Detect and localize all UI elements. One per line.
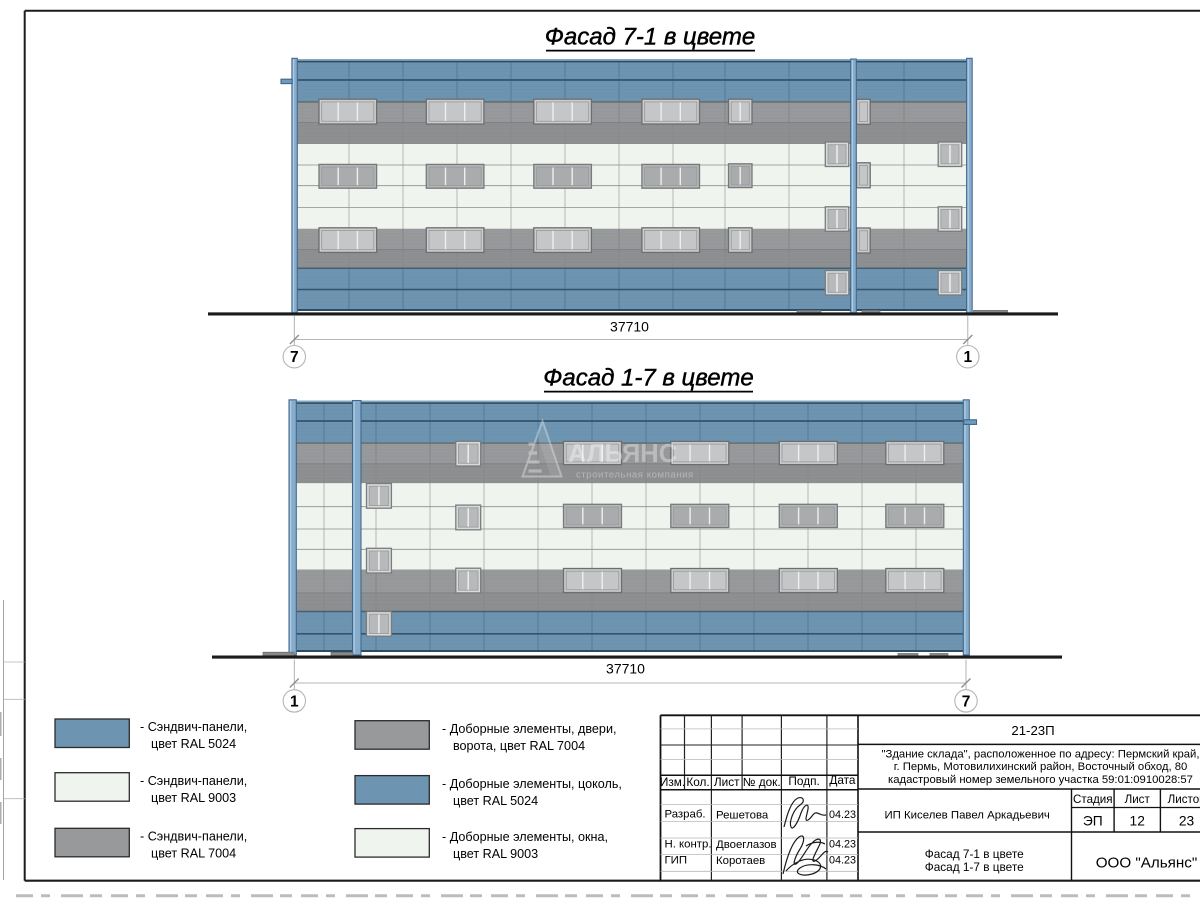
svg-text:цвет RAL 7004: цвет RAL 7004 bbox=[151, 847, 236, 861]
svg-text:ИП Киселев Павел Аркадьевич: ИП Киселев Павел Аркадьевич bbox=[885, 809, 1050, 821]
svg-text:12: 12 bbox=[1130, 814, 1145, 829]
svg-text:1: 1 bbox=[963, 349, 972, 366]
svg-text:Лист: Лист bbox=[1125, 793, 1151, 806]
svg-text:ЭП: ЭП bbox=[1083, 814, 1103, 829]
svg-text:Изм.: Изм. bbox=[660, 775, 685, 789]
svg-text:04.23: 04.23 bbox=[829, 855, 856, 867]
svg-text:Подп.: Подп. bbox=[788, 774, 819, 788]
svg-text:7: 7 bbox=[290, 349, 299, 366]
svg-text:Фасад 7-1 в цвете: Фасад 7-1 в цвете bbox=[545, 24, 755, 51]
svg-text:04.23: 04.23 bbox=[829, 839, 856, 851]
svg-text:Стадия: Стадия bbox=[1073, 793, 1113, 806]
svg-text:- Сэндвич-панели,: - Сэндвич-панели, bbox=[140, 720, 247, 734]
svg-text:Разраб.: Разраб. bbox=[665, 809, 706, 821]
svg-text:строительная компания: строительная компания bbox=[576, 470, 694, 481]
svg-text:ворота, цвет RAL 7004: ворота, цвет RAL 7004 bbox=[453, 739, 585, 753]
svg-text:Листов: Листов bbox=[1168, 793, 1200, 806]
svg-text:Коротаев: Коротаев bbox=[716, 855, 765, 867]
svg-text:37710: 37710 bbox=[610, 319, 649, 335]
svg-text:цвет RAL 5024: цвет RAL 5024 bbox=[151, 737, 236, 751]
svg-text:7: 7 bbox=[962, 693, 971, 710]
svg-text:цвет RAL 9003: цвет RAL 9003 bbox=[453, 847, 538, 861]
svg-text:цвет RAL 9003: цвет RAL 9003 bbox=[151, 791, 236, 805]
svg-text:кадастровый номер земельного у: кадастровый номер земельного участка 59:… bbox=[888, 774, 1193, 786]
svg-text:№ док.: № док. bbox=[743, 775, 781, 789]
svg-text:Двоеглазов: Двоеглазов bbox=[716, 839, 777, 851]
svg-text:- Доборные элементы, окна,: - Доборные элементы, окна, bbox=[442, 830, 608, 844]
svg-text:Лист: Лист bbox=[714, 775, 740, 789]
svg-text:- Доборные элементы, двери,: - Доборные элементы, двери, bbox=[442, 722, 616, 736]
svg-text:Н. контр.: Н. контр. bbox=[665, 839, 712, 851]
svg-text:"Здание склада", расположенное: "Здание склада", расположенное по адресу… bbox=[881, 749, 1199, 761]
svg-text:ГИП: ГИП bbox=[665, 855, 688, 867]
svg-text:04.23: 04.23 bbox=[829, 809, 856, 821]
svg-text:- Сэндвич-панели,: - Сэндвич-панели, bbox=[140, 774, 247, 788]
svg-text:АЛЬЯНС: АЛЬЯНС bbox=[568, 440, 677, 468]
svg-text:Решетова: Решетова bbox=[716, 810, 769, 822]
svg-text:1: 1 bbox=[290, 693, 299, 710]
svg-text:ООО "Альянс": ООО "Альянс" bbox=[1096, 854, 1198, 871]
svg-text:Кол.: Кол. bbox=[686, 775, 709, 789]
svg-text:Фасад 1-7 в цвете: Фасад 1-7 в цвете bbox=[543, 365, 753, 392]
svg-text:г. Пермь, Мотовилихинский райо: г. Пермь, Мотовилихинский район, Восточн… bbox=[894, 761, 1188, 773]
svg-text:- Доборные элементы, цоколь,: - Доборные элементы, цоколь, bbox=[442, 777, 622, 791]
svg-text:Фасад 1-7 в цвете: Фасад 1-7 в цвете bbox=[925, 860, 1024, 874]
svg-text:37710: 37710 bbox=[606, 661, 645, 677]
svg-text:Дата: Дата bbox=[829, 773, 856, 787]
svg-text:21-23П: 21-23П bbox=[1011, 723, 1054, 738]
svg-text:- Сэндвич-панели,: - Сэндвич-панели, bbox=[140, 830, 247, 844]
svg-text:цвет RAL 5024: цвет RAL 5024 bbox=[453, 794, 538, 808]
svg-text:23: 23 bbox=[1179, 814, 1195, 829]
